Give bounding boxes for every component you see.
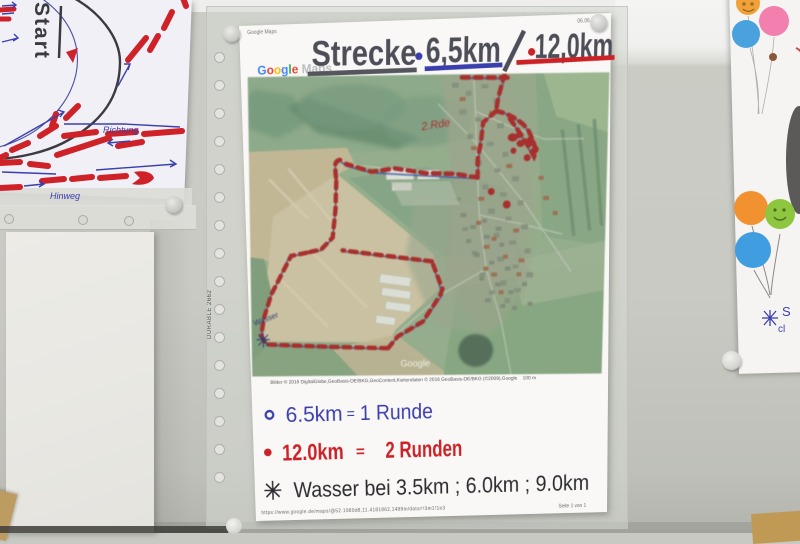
svg-text:Start: Start xyxy=(30,2,53,60)
svg-text:Wasser bei 3.5km ; 6.0km ; 9.0: Wasser bei 3.5km ; 6.0km ; 9.0km xyxy=(293,470,589,502)
svg-text:6.5km: 6.5km xyxy=(285,402,343,427)
svg-text:=: = xyxy=(356,443,365,460)
svg-text:cl: cl xyxy=(778,324,785,335)
svg-text:S: S xyxy=(782,304,791,319)
svg-text:Google: Google xyxy=(401,359,430,370)
svg-text:Hinweg: Hinweg xyxy=(50,191,80,201)
svg-text:2 Runden: 2 Runden xyxy=(385,435,462,463)
svg-text:=: = xyxy=(346,406,355,422)
svg-text:1 Runde: 1 Runde xyxy=(360,399,433,425)
svg-text:Richtung: Richtung xyxy=(103,125,139,135)
svg-text:12.0km: 12.0km xyxy=(282,438,344,465)
svg-text:Strecke: Strecke xyxy=(311,32,416,74)
